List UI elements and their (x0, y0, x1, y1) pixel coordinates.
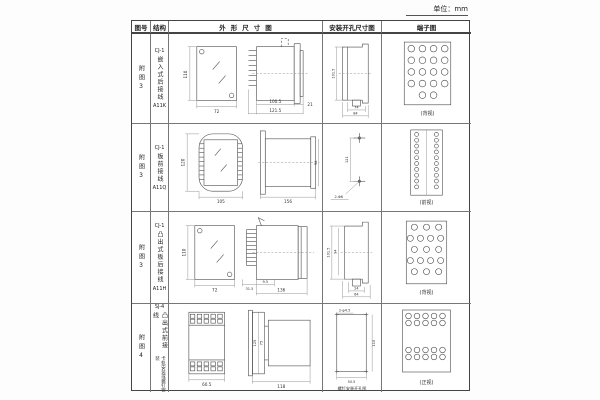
dim-label: 9.5 (263, 280, 269, 284)
terminal-drawing-cell: (背视) (382, 212, 471, 304)
dim-label: 110 (181, 248, 186, 256)
dim-label: 74 (354, 105, 359, 109)
terminal-drawing-cell: (正视) (382, 304, 471, 392)
dim-label: 21 (307, 102, 313, 107)
structure-cell: CJ-1 凸出式板后接线 A11H (151, 212, 169, 304)
structure-type-label: 凸出式板后接线 (155, 231, 164, 284)
outline-drawing-cell: 110 72 31.5 (169, 212, 323, 304)
dim-label: 54 (314, 160, 318, 165)
install-drawing-cell: 101.5 94 24 64 (323, 212, 382, 304)
terminal-view-label: (正视) (420, 379, 434, 386)
dim-label: 84 (353, 111, 358, 115)
structure-type-label: 板前接线 (155, 153, 164, 183)
dim-label: 136 (277, 287, 285, 292)
install-drawing-r4: 2-φ4.5 110 50.5 螺钉安装开孔图 (323, 304, 381, 392)
terminal-drawing-cell: (背视) (382, 34, 471, 124)
document-page: 单位：mm 图号 结构 外形尺寸图 安装开孔尺寸图 端子图 附图3 CJ-1 嵌… (0, 0, 600, 400)
dim-label: 110 (372, 340, 376, 347)
dim-label: 121 (345, 156, 349, 163)
dim-label: 75 (259, 341, 263, 346)
terminal-drawing-r4: (正视) (382, 304, 471, 392)
dim-label: 101.5 (331, 69, 335, 79)
install-drawing-r3: 101.5 94 24 64 (323, 212, 381, 303)
model-label: CJ-1 (155, 145, 165, 151)
dim-label: 94 (333, 249, 337, 254)
col-header-install: 安装开孔尺寸图 (323, 21, 382, 34)
terminal-view-label: (背视) (419, 289, 433, 296)
hole-spec-label: 2-φ4.5 (339, 309, 350, 313)
fig-no-label: 附图3 (137, 244, 146, 272)
dim-label: 64 (354, 292, 359, 296)
dim-label: 120 (181, 158, 186, 166)
install-drawing-r2: 121 2-Φ6 (323, 124, 381, 211)
outline-drawing-r1: 110 72 100.5 21 (169, 34, 322, 123)
code-label: A11K (153, 103, 166, 109)
structure-type-label: 凸出式前接线 (151, 312, 169, 352)
col-header-fig-no: 图号 (132, 21, 151, 34)
dim-label: 72 (212, 287, 218, 292)
dim-label: 101.5 (326, 248, 330, 258)
install-caption: 螺钉安装开孔图 (338, 385, 367, 391)
col-header-terminal: 端子图 (382, 21, 471, 34)
code-label: A11Q (153, 185, 167, 191)
outline-drawing-r3: 110 72 31.5 (169, 212, 322, 303)
dim-label: 100.5 (269, 99, 281, 104)
code-label: A11H (153, 286, 167, 292)
install-drawing-cell: 2-φ4.5 110 50.5 螺钉安装开孔图 (323, 304, 382, 392)
col-header-outline: 外形尺寸图 (169, 21, 323, 34)
terminal-view-label: (背视) (420, 110, 434, 117)
dim-label: 31.5 (246, 287, 254, 291)
fig-no-cell: 附图3 (132, 124, 151, 212)
terminal-drawing-r1: (背视) (382, 34, 471, 123)
outline-drawing-r2: 120 105 156 54 (169, 124, 322, 211)
mounting-note-label: 卡轨安装或螺钉安装 (154, 356, 166, 392)
terminal-drawing-cell: (前视) (382, 124, 471, 212)
install-drawing-cell: 101.5 74 84 (323, 34, 382, 124)
dim-label: 118 (277, 384, 285, 389)
model-label: CJ-1 (155, 48, 165, 54)
terminal-drawing-r2: (前视) (382, 124, 471, 211)
fig-no-label: 附图4 (137, 334, 146, 362)
col-header-structure: 结构 (151, 21, 169, 34)
fig-no-label: 附图3 (137, 154, 146, 182)
dim-label: 60.5 (202, 382, 212, 387)
dim-label: 156 (284, 199, 292, 204)
structure-cell: CJ-1 板前接线 A11Q (151, 124, 169, 212)
dim-label: 72 (214, 109, 220, 114)
dim-label: 121.5 (269, 108, 281, 113)
model-label: SJ-4 (155, 304, 164, 310)
outline-drawing-cell: 110 72 100.5 21 (169, 34, 323, 124)
dim-label: 50.5 (348, 380, 356, 384)
dim-label: 24 (354, 286, 359, 290)
dim-label: 110 (183, 70, 188, 78)
unit-note: 单位：mm (406, 4, 468, 16)
fig-no-cell: 附图3 (132, 212, 151, 304)
hole-spec-label: 2-Φ6 (334, 195, 343, 199)
dimension-table: 图号 结构 外形尺寸图 安装开孔尺寸图 端子图 附图3 CJ-1 嵌入式后接线 … (131, 20, 470, 391)
fig-no-cell: 附图4 (132, 304, 151, 392)
structure-cell: SJ-4 凸出式前接线 卡轨安装或螺钉安装 (151, 304, 169, 392)
install-drawing-r1: 101.5 74 84 (323, 34, 381, 123)
outline-drawing-r4: 60.5 125 75 118 (169, 304, 322, 392)
terminal-drawing-r3: (背视) (382, 212, 471, 303)
outline-drawing-cell: 120 105 156 54 (169, 124, 323, 212)
fig-no-cell: 附图3 (132, 34, 151, 124)
install-drawing-cell: 121 2-Φ6 (323, 124, 382, 212)
outline-drawing-cell: 60.5 125 75 118 (169, 304, 323, 392)
terminal-view-label: (前视) (420, 199, 434, 206)
dim-label: 125 (253, 340, 257, 347)
structure-type-label: 嵌入式后接线 (155, 56, 164, 101)
model-label: CJ-1 (155, 223, 165, 229)
structure-cell: CJ-1 嵌入式后接线 A11K (151, 34, 169, 124)
dim-label: 105 (217, 199, 225, 204)
fig-no-label: 附图3 (137, 65, 146, 93)
